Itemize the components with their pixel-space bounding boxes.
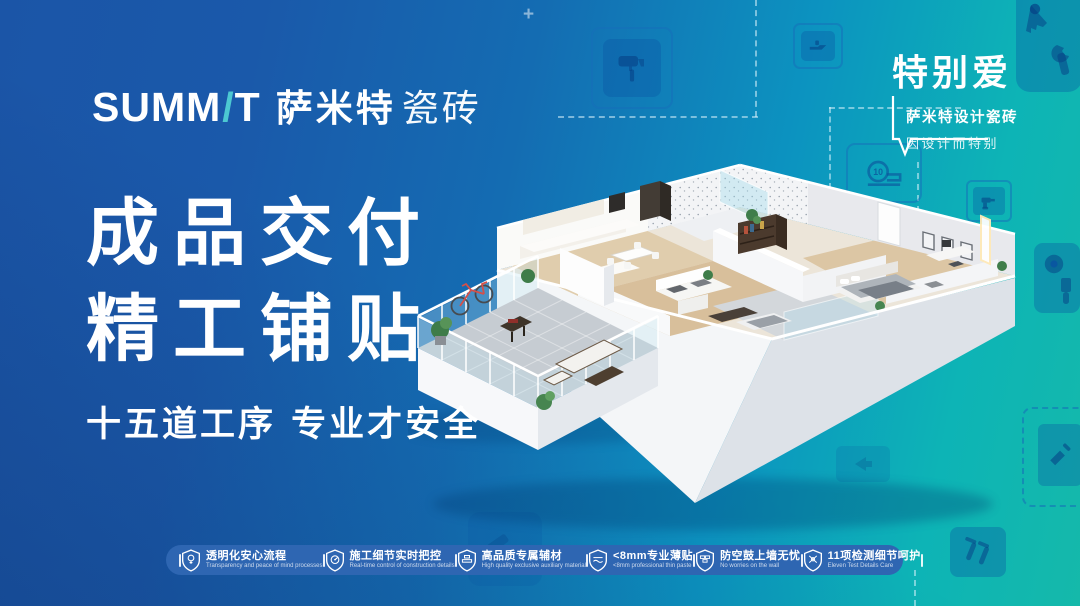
apartment-3d-render <box>408 158 1028 538</box>
bulb-shield-icon <box>181 549 201 572</box>
dashed-line <box>914 570 916 606</box>
check-shield-icon <box>803 549 823 572</box>
feature-en: No worries on the wall <box>720 563 801 570</box>
separator <box>921 554 923 567</box>
feature-zh: 透明化安心流程 <box>206 550 323 562</box>
feature-en: Transparency and peace of mind processes <box>206 563 323 570</box>
paint-roller-icon <box>603 39 661 97</box>
feature-en: Eleven Test Details Care <box>828 563 921 570</box>
thin-paste-shield-icon <box>588 549 608 572</box>
material-shield-icon <box>457 549 477 572</box>
brand-logo: SUMM / T 萨米特 瓷砖 <box>92 78 482 132</box>
bg-tile-saw-wrench <box>1016 0 1080 92</box>
bg-tile-trowel <box>1022 407 1080 507</box>
dashed-line <box>755 0 757 117</box>
logo-cn-light: 瓷砖 <box>402 78 482 132</box>
feature-en: High quality exclusive auxiliary materia… <box>482 563 586 570</box>
headline-line1: 成品交付 <box>86 186 481 282</box>
logo-text-t: T <box>235 84 261 131</box>
logo-cn-bold: 萨米特 <box>276 78 396 132</box>
headline-line2: 精工铺贴 <box>86 282 481 378</box>
screws-icon <box>961 537 995 567</box>
feature-materials: 高品质专属辅材High quality exclusive auxiliary … <box>457 549 586 572</box>
logo-text-summ: SUMM <box>92 84 221 131</box>
headline: 成品交付 精工铺贴 十五道工序 专业才安全 <box>86 186 481 447</box>
planer-icon <box>801 31 835 61</box>
plus-mark: + <box>523 4 534 26</box>
feature-inspection: 11项检测细节呵护Eleven Test Details Care <box>803 549 921 572</box>
feature-band: 透明化安心流程Transparency and peace of mind pr… <box>166 545 903 575</box>
trowel-icon <box>1038 424 1080 486</box>
saw-icon <box>1023 0 1075 81</box>
feature-zh: 11项检测细节呵护 <box>828 550 921 562</box>
corner-badge-title: 特别爱 <box>892 44 1018 96</box>
feature-en: <8mm professional thin paste <box>613 563 693 570</box>
corner-badge: 特别爱 萨米特设计瓷砖 因设计而特别 <box>880 44 1018 152</box>
feature-zh: <8mm专业薄贴 <box>613 550 693 562</box>
bg-tile-tape-brush <box>1034 243 1080 313</box>
paint-brush-icon <box>1040 250 1074 306</box>
bg-tile-planer <box>793 23 843 69</box>
feature-thin-paste: <8mm专业薄贴<8mm professional thin paste <box>588 549 693 572</box>
headline-subline: 十五道工序 专业才安全 <box>86 396 481 447</box>
banner: + 10 <box>0 0 1080 606</box>
feature-transparency: 透明化安心流程Transparency and peace of mind pr… <box>181 549 323 572</box>
door <box>878 202 900 246</box>
logo-slash-icon: / <box>222 84 233 131</box>
wall-shield-icon <box>695 549 715 572</box>
feature-zh: 高品质专属辅材 <box>482 550 586 562</box>
feature-zh: 防空鼓上墙无忧 <box>720 550 801 562</box>
feature-zh: 施工细节实时把控 <box>350 550 455 562</box>
dashed-line <box>558 116 758 118</box>
bg-tile-paint-roller <box>591 27 673 109</box>
speech-bubble-outline <box>888 94 998 160</box>
feature-en: Real-time control of construction detail… <box>350 563 455 570</box>
monitor-shield-icon <box>325 549 345 572</box>
feature-realtime-control: 施工细节实时把控Real-time control of constructio… <box>325 549 455 572</box>
feature-no-hollow: 防空鼓上墙无忧No worries on the wall <box>695 549 801 572</box>
lighted-mirror <box>981 216 990 264</box>
